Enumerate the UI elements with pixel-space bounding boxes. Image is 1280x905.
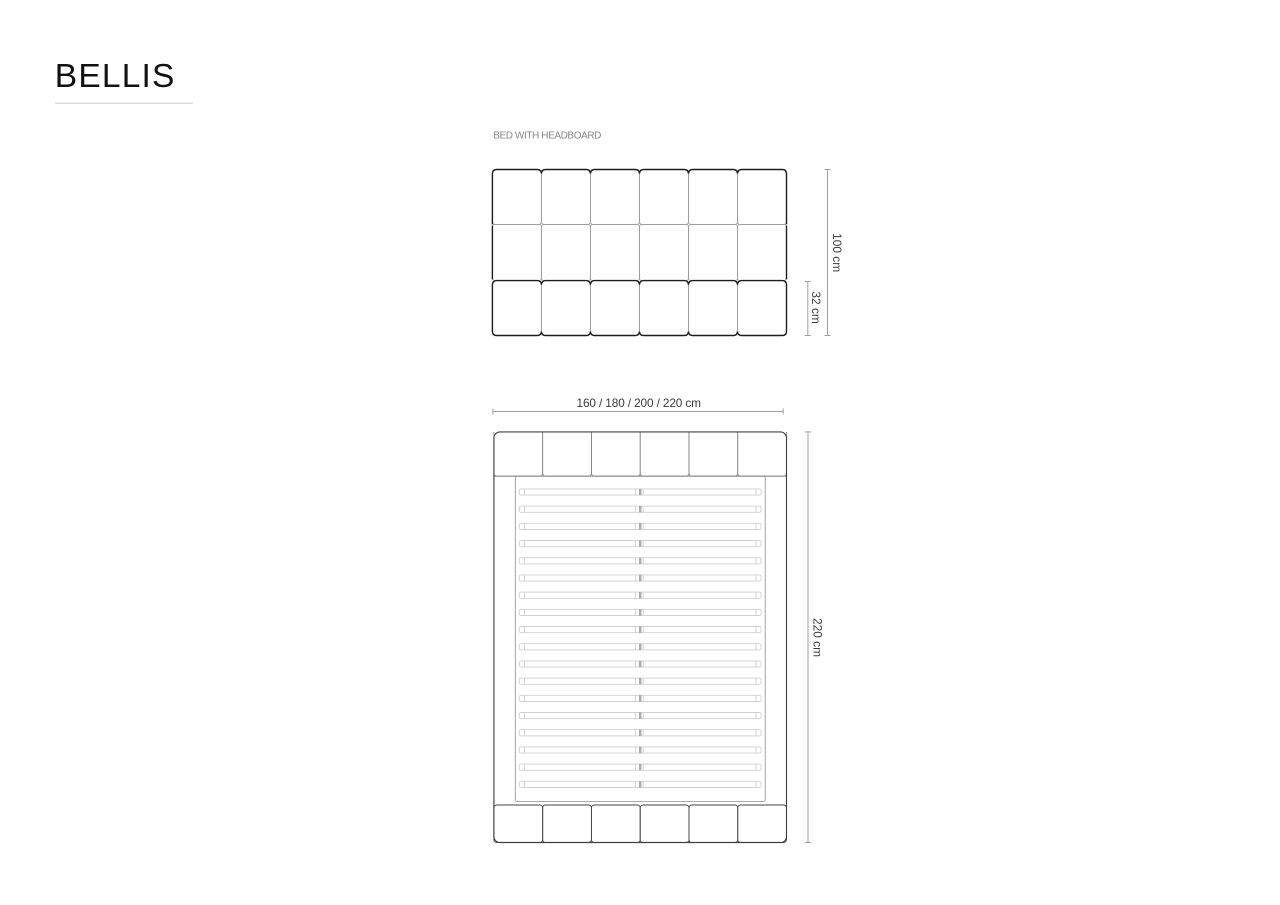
- svg-text:BELLIS: BELLIS: [55, 58, 176, 95]
- svg-text:100 cm: 100 cm: [830, 233, 844, 272]
- svg-text:32 cm: 32 cm: [809, 291, 823, 323]
- svg-text:220 cm: 220 cm: [810, 618, 824, 657]
- svg-text:160 / 180 / 200 / 220 cm: 160 / 180 / 200 / 220 cm: [577, 396, 702, 410]
- svg-text:BED WITH HEADBOARD: BED WITH HEADBOARD: [493, 131, 601, 142]
